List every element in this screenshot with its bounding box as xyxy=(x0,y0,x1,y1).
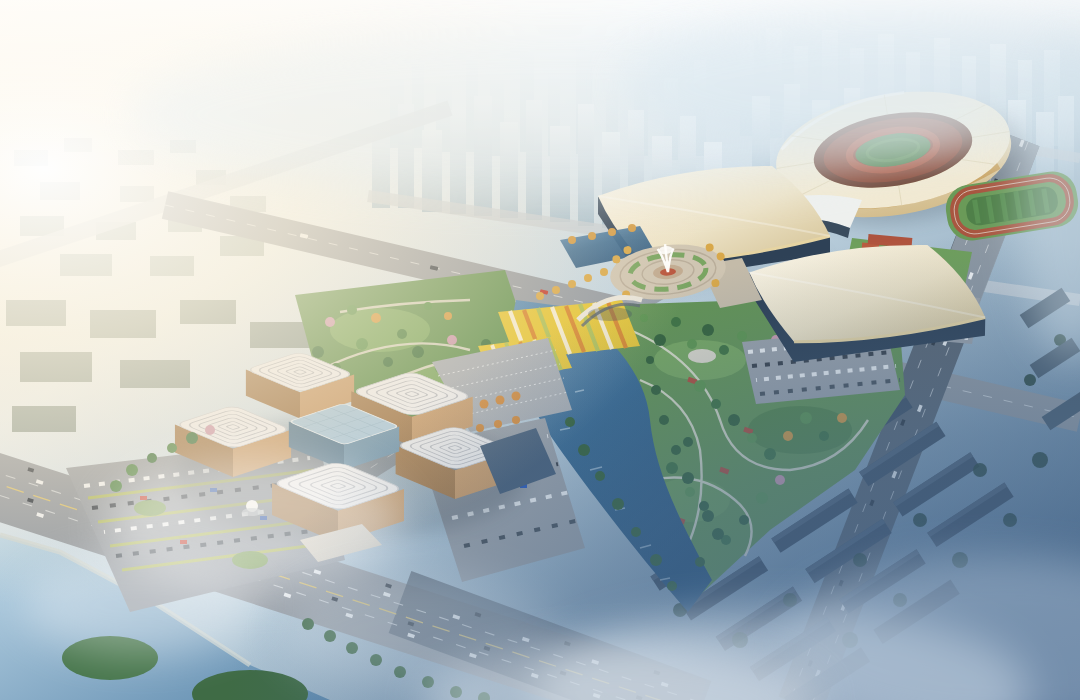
atmosphere xyxy=(0,0,1080,700)
rendering-canvas xyxy=(0,0,1080,700)
aerial-rendering xyxy=(0,0,1080,700)
